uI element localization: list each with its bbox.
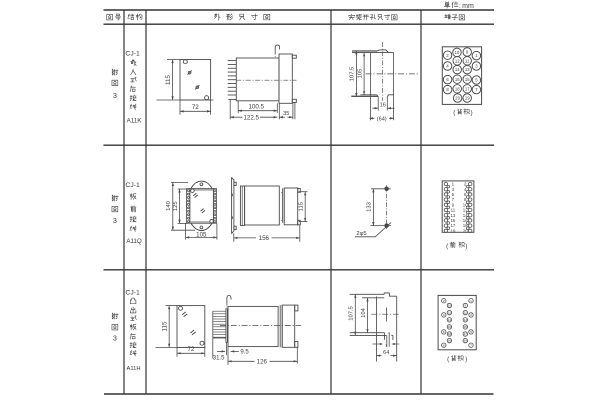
svg-text:6: 6 <box>443 330 445 334</box>
svg-text:115: 115 <box>165 75 172 85</box>
svg-text:16: 16 <box>455 77 460 82</box>
svg-text:107.5: 107.5 <box>349 306 355 321</box>
svg-text:115: 115 <box>162 321 169 331</box>
svg-text:14: 14 <box>448 318 452 322</box>
svg-text:17: 17 <box>464 332 468 336</box>
svg-text:2φ5: 2φ5 <box>356 231 367 237</box>
svg-text:35: 35 <box>283 111 289 117</box>
svg-text:156: 156 <box>259 235 270 242</box>
svg-text:4: 4 <box>443 313 445 317</box>
svg-text:CJ-1: CJ-1 <box>125 51 140 58</box>
svg-text:A11H: A11H <box>126 366 140 372</box>
svg-text:CJ-1: CJ-1 <box>125 182 140 189</box>
svg-text:12: 12 <box>455 58 460 63</box>
svg-text:122.5: 122.5 <box>243 114 259 121</box>
svg-text:14: 14 <box>455 67 460 72</box>
svg-text:126: 126 <box>257 358 268 365</box>
svg-text:13: 13 <box>464 318 468 322</box>
svg-text:16: 16 <box>380 102 386 108</box>
svg-text:72: 72 <box>187 346 194 353</box>
svg-text:9: 9 <box>464 304 466 308</box>
svg-text:mm: mm <box>462 3 474 10</box>
svg-text:100.5: 100.5 <box>248 103 264 110</box>
svg-text:20: 20 <box>463 228 468 233</box>
svg-text:2: 2 <box>443 299 445 303</box>
svg-text:19: 19 <box>464 339 468 343</box>
svg-text:A11K: A11K <box>127 118 143 125</box>
svg-text:15: 15 <box>465 77 470 82</box>
svg-text:115: 115 <box>299 202 305 211</box>
svg-text:10: 10 <box>455 50 460 55</box>
svg-text:31.5: 31.5 <box>213 356 225 362</box>
svg-text:72: 72 <box>192 104 199 111</box>
svg-text:11: 11 <box>464 311 467 315</box>
svg-text:104: 104 <box>361 307 367 317</box>
svg-text:15: 15 <box>464 325 468 329</box>
svg-text:): ) <box>465 243 467 250</box>
svg-text:105: 105 <box>196 231 207 238</box>
svg-text:(64): (64) <box>377 117 387 123</box>
svg-text:19: 19 <box>465 96 470 101</box>
svg-text:1: 1 <box>470 299 472 303</box>
svg-text:A11Q: A11Q <box>126 238 142 245</box>
svg-text:64: 64 <box>383 350 389 356</box>
svg-text:140: 140 <box>166 201 172 211</box>
svg-text:3: 3 <box>113 333 117 342</box>
svg-text:3: 3 <box>113 91 117 100</box>
svg-text:10: 10 <box>448 304 452 308</box>
svg-text:16: 16 <box>448 325 452 329</box>
svg-text:13: 13 <box>465 67 470 72</box>
svg-text:5: 5 <box>470 330 472 334</box>
svg-text:3: 3 <box>113 216 117 225</box>
svg-text:11: 11 <box>465 58 470 63</box>
svg-text:7: 7 <box>470 343 472 347</box>
svg-text:9.5: 9.5 <box>240 350 249 356</box>
svg-text:20: 20 <box>455 96 460 101</box>
svg-text:18: 18 <box>455 86 460 91</box>
svg-text:17: 17 <box>465 86 470 91</box>
svg-text:7: 7 <box>385 343 387 347</box>
svg-text:3: 3 <box>470 313 472 317</box>
svg-text:105: 105 <box>358 69 364 79</box>
svg-text:107.5: 107.5 <box>350 67 356 82</box>
svg-text:20: 20 <box>448 339 452 343</box>
svg-text:): ) <box>471 110 473 117</box>
svg-text:18: 18 <box>448 332 452 336</box>
svg-text:): ) <box>465 356 467 363</box>
svg-text:12: 12 <box>448 311 452 315</box>
svg-text:133: 133 <box>367 202 373 212</box>
svg-text:125: 125 <box>173 201 179 211</box>
svg-text:CJ-1: CJ-1 <box>125 289 140 296</box>
svg-text::: : <box>459 3 461 10</box>
svg-text:8: 8 <box>443 343 445 347</box>
svg-text:19: 19 <box>450 228 455 233</box>
